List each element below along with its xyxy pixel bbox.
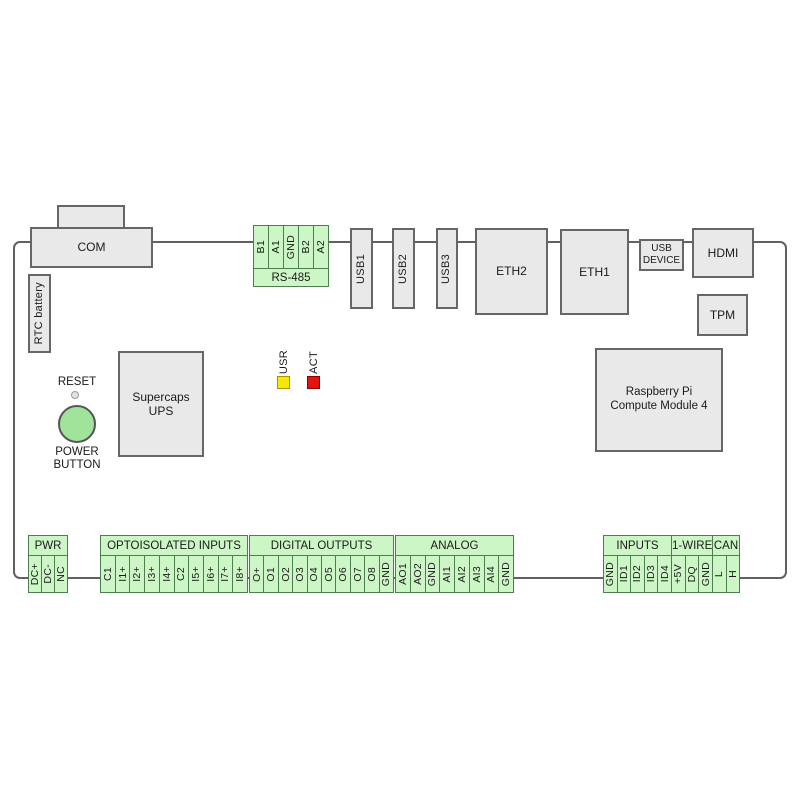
terminal-pin: AI1 — [440, 556, 455, 592]
terminal-pin: H — [727, 556, 740, 592]
terminal-pin: B2 — [299, 226, 314, 268]
terminal-pin: C2 — [175, 556, 190, 592]
terminal-pin: L — [713, 556, 727, 592]
terminal-pin-label: I6+ — [205, 566, 217, 582]
usb3-label: USB3 — [440, 254, 453, 284]
terminal-pin: C1 — [101, 556, 116, 592]
power-button — [58, 405, 96, 443]
terminal-pin: AI4 — [485, 556, 500, 592]
rs485-pins: B1A1GNDB2A2 — [254, 226, 328, 268]
terminal-pin: GND — [604, 556, 618, 592]
terminal-pin-label: GND — [426, 562, 438, 586]
terminal-pin: NC — [55, 556, 67, 592]
terminal-pin: GND — [380, 556, 393, 592]
tpm-chip: TPM — [697, 294, 748, 336]
terminal-pin-label: O8 — [366, 567, 378, 582]
terminal-pin: GND — [699, 556, 712, 592]
terminal-pin-label: O4 — [308, 567, 320, 582]
terminal-pin-label: I1+ — [117, 566, 129, 582]
terminal-pin: I7+ — [219, 556, 234, 592]
terminal-pin-label: O1 — [265, 567, 277, 582]
terminal-pin-label: ID1 — [618, 565, 630, 582]
usr-led — [277, 376, 290, 389]
optoisolated-inputs-pins: C1I1+I2+I3+I4+C2I5+I6+I7+I8+ — [101, 556, 247, 592]
terminal-pin: ID1 — [618, 556, 632, 592]
terminal-pin: O8 — [365, 556, 379, 592]
digital-outputs-pins: O+O1O2O3O4O5O6O7O8GND — [250, 556, 393, 592]
terminal-pin: O5 — [322, 556, 336, 592]
terminal-pin: I5+ — [189, 556, 204, 592]
optoisolated-inputs-title: OPTOISOLATED INPUTS — [101, 536, 247, 556]
pwr-terminal-block: PWR DC+DC-NC — [28, 535, 68, 593]
eth1-label: ETH1 — [579, 265, 610, 279]
terminal-pin: DC+ — [29, 556, 42, 592]
usr-led-label-box: USR — [276, 347, 292, 374]
can-terminal-block: CAN LH — [712, 535, 740, 593]
hdmi-label: HDMI — [708, 246, 739, 260]
terminal-pin-label: ID2 — [631, 565, 643, 582]
usb1-label: USB1 — [355, 254, 368, 284]
one-wire-title: 1-WIRE — [672, 536, 712, 556]
can-title: CAN — [713, 536, 739, 556]
terminal-pin: I1+ — [116, 556, 131, 592]
terminal-pin-label: O3 — [294, 567, 306, 582]
rs485-terminal-block: B1A1GNDB2A2 RS-485 — [253, 225, 329, 287]
terminal-pin-label: I2+ — [131, 566, 143, 582]
terminal-pin-label: I5+ — [190, 566, 202, 582]
terminal-pin: AI3 — [470, 556, 485, 592]
eth1-connector: ETH1 — [560, 229, 629, 315]
terminal-pin: A1 — [269, 226, 284, 268]
terminal-pin: O6 — [336, 556, 350, 592]
usb1-connector: USB1 — [350, 228, 373, 309]
terminal-pin-label: B2 — [300, 240, 312, 253]
usb3-connector: USB3 — [436, 228, 458, 309]
terminal-pin-label: H — [727, 570, 739, 578]
terminal-pin: I8+ — [233, 556, 247, 592]
eth2-label: ETH2 — [496, 264, 527, 278]
terminal-pin: ID4 — [658, 556, 671, 592]
terminal-pin: I4+ — [160, 556, 175, 592]
terminal-pin-label: I3+ — [146, 566, 158, 582]
terminal-pin: DQ — [686, 556, 700, 592]
analog-terminal-block: ANALOG AO1AO2GNDAI1AI2AI3AI4GND — [395, 535, 514, 593]
one-wire-terminal-block: 1-WIRE +5VDQGND — [671, 535, 713, 593]
terminal-pin: GND — [426, 556, 441, 592]
terminal-pin-label: I4+ — [161, 566, 173, 582]
terminal-pin: +5V — [672, 556, 686, 592]
act-led — [307, 376, 320, 389]
usb-device-label-line2: DEVICE — [643, 255, 680, 267]
terminal-pin: ID3 — [645, 556, 659, 592]
digital-outputs-title: DIGITAL OUTPUTS — [250, 536, 393, 556]
usb-device-label-line1: USB — [651, 243, 672, 255]
terminal-pin: O7 — [351, 556, 365, 592]
terminal-pin-label: C1 — [102, 567, 114, 581]
digital-outputs-terminal-block: DIGITAL OUTPUTS O+O1O2O3O4O5O6O7O8GND — [249, 535, 394, 593]
usb-device-connector: USB DEVICE — [639, 239, 684, 271]
terminal-pin-label: O5 — [323, 567, 335, 582]
cm4-label-line1: Raspberry Pi — [626, 386, 692, 400]
inputs-terminal-block: INPUTS GNDID1ID2ID3ID4 — [603, 535, 672, 593]
usr-led-label: USR — [278, 350, 290, 374]
one-wire-pins: +5VDQGND — [672, 556, 712, 592]
terminal-pin-label: AO2 — [412, 563, 424, 585]
reset-button — [71, 391, 79, 399]
terminal-pin-label: AI3 — [471, 566, 483, 583]
terminal-pin-label: GND — [380, 562, 392, 586]
terminal-pin-label: DQ — [686, 566, 698, 582]
terminal-pin-label: B1 — [255, 240, 267, 253]
supercaps-ups: Supercaps UPS — [118, 351, 204, 457]
can-pins: LH — [713, 556, 739, 592]
terminal-pin-label: GND — [285, 235, 297, 259]
reset-label: RESET — [45, 376, 109, 389]
terminal-pin-label: AI4 — [485, 566, 497, 583]
terminal-pin-label: DC+ — [29, 563, 41, 585]
terminal-pin-label: +5V — [672, 564, 684, 584]
inputs-pins: GNDID1ID2ID3ID4 — [604, 556, 671, 592]
terminal-pin: B1 — [254, 226, 269, 268]
board-diagram: COM RTC battery B1A1GNDB2A2 RS-485 USB1 … — [0, 0, 800, 800]
act-led-label: ACT — [308, 351, 320, 374]
supercaps-label-line2: UPS — [149, 404, 174, 418]
terminal-pin-label: O+ — [251, 567, 263, 582]
terminal-pin: O1 — [264, 556, 278, 592]
terminal-pin-label: DC- — [42, 564, 54, 584]
terminal-pin-label: C2 — [175, 567, 187, 581]
optoisolated-inputs-terminal-block: OPTOISOLATED INPUTS C1I1+I2+I3+I4+C2I5+I… — [100, 535, 248, 593]
terminal-pin-label: O2 — [280, 567, 292, 582]
terminal-pin-label: A2 — [315, 240, 327, 253]
terminal-pin-label: A1 — [270, 240, 282, 253]
terminal-pin-label: I7+ — [219, 566, 231, 582]
analog-title: ANALOG — [396, 536, 513, 556]
com-connector: COM — [30, 227, 153, 268]
terminal-pin-label: NC — [55, 566, 67, 582]
terminal-pin-label: AO1 — [397, 563, 409, 585]
terminal-pin: I6+ — [204, 556, 219, 592]
terminal-pin: AO1 — [396, 556, 411, 592]
terminal-pin: ID2 — [631, 556, 645, 592]
analog-pins: AO1AO2GNDAI1AI2AI3AI4GND — [396, 556, 513, 592]
cm4-label-line2: Compute Module 4 — [610, 400, 707, 414]
terminal-pin-label: ID3 — [645, 565, 657, 582]
terminal-pin: GND — [499, 556, 513, 592]
raspberry-pi-cm4: Raspberry Pi Compute Module 4 — [595, 348, 723, 452]
terminal-pin: O2 — [279, 556, 293, 592]
terminal-pin: AI2 — [455, 556, 470, 592]
terminal-pin: AO2 — [411, 556, 426, 592]
terminal-pin-label: GND — [604, 562, 616, 586]
eth2-connector: ETH2 — [475, 228, 548, 315]
usb2-label: USB2 — [397, 254, 410, 284]
tpm-label: TPM — [710, 308, 735, 322]
terminal-pin: DC- — [42, 556, 55, 592]
power-button-label-line2: BUTTON — [37, 459, 117, 472]
terminal-pin-label: AI2 — [456, 566, 468, 583]
terminal-pin-label: AI1 — [441, 566, 453, 583]
rtc-battery: RTC battery — [28, 274, 51, 353]
terminal-pin-label: GND — [700, 562, 712, 586]
terminal-pin-label: ID4 — [659, 565, 671, 582]
terminal-pin-label: L — [713, 571, 725, 577]
usb2-connector: USB2 — [392, 228, 415, 309]
terminal-pin-label: I8+ — [234, 566, 246, 582]
terminal-pin: I2+ — [130, 556, 145, 592]
pwr-pins: DC+DC-NC — [29, 556, 67, 592]
terminal-pin-label: O7 — [352, 567, 364, 582]
terminal-pin: A2 — [314, 226, 328, 268]
rtc-battery-label: RTC battery — [33, 282, 46, 344]
terminal-pin-label: O6 — [337, 567, 349, 582]
terminal-pin-label: GND — [500, 562, 512, 586]
terminal-pin: I3+ — [145, 556, 160, 592]
rs485-title: RS-485 — [254, 268, 328, 286]
terminal-pin: GND — [284, 226, 299, 268]
pwr-title: PWR — [29, 536, 67, 556]
terminal-pin: O4 — [308, 556, 322, 592]
terminal-pin: O+ — [250, 556, 264, 592]
supercaps-label-line1: Supercaps — [132, 390, 189, 404]
act-led-label-box: ACT — [306, 347, 322, 374]
hdmi-connector: HDMI — [692, 228, 754, 278]
terminal-pin: O3 — [293, 556, 307, 592]
inputs-title: INPUTS — [604, 536, 671, 556]
com-connector-tab — [57, 205, 125, 229]
com-label: COM — [78, 240, 106, 254]
power-button-label-line1: POWER — [37, 446, 117, 459]
